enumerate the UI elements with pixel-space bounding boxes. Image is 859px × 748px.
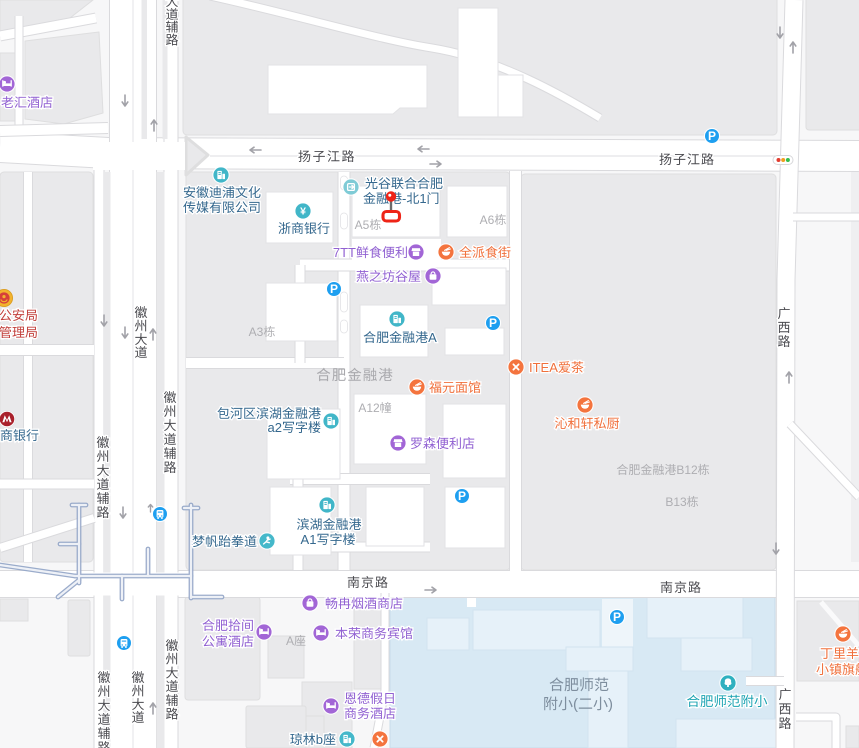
- svg-text:公寓酒店: 公寓酒店: [202, 634, 254, 649]
- svg-text:道: 道: [96, 477, 109, 492]
- svg-text:P: P: [458, 489, 466, 503]
- svg-text:徽: 徽: [96, 435, 109, 450]
- svg-text:徽: 徽: [163, 390, 176, 405]
- svg-text:¥: ¥: [300, 206, 306, 218]
- svg-text:路: 路: [777, 334, 790, 349]
- svg-text:辅: 辅: [163, 446, 176, 461]
- svg-text:A12幢: A12幢: [358, 401, 391, 415]
- svg-text:恩德假日: 恩德假日: [344, 691, 396, 706]
- svg-text:A座: A座: [286, 634, 306, 648]
- svg-text:P: P: [613, 610, 621, 624]
- svg-text:沁和轩私厨: 沁和轩私厨: [554, 416, 619, 431]
- svg-text:西: 西: [778, 702, 791, 717]
- svg-text:P: P: [330, 282, 338, 296]
- svg-text:滨湖金融港: 滨湖金融港: [296, 517, 361, 532]
- svg-text:大: 大: [163, 418, 176, 433]
- svg-text:A1写字楼: A1写字楼: [301, 532, 356, 547]
- svg-text:大: 大: [96, 463, 109, 478]
- svg-text:西: 西: [777, 320, 790, 335]
- svg-text:本荣商务宾馆: 本荣商务宾馆: [335, 626, 413, 641]
- svg-text:州: 州: [96, 449, 109, 464]
- svg-text:道: 道: [131, 710, 144, 725]
- svg-text:传媒有限公司: 传媒有限公司: [183, 200, 261, 215]
- svg-text:市公安局: 市公安局: [0, 308, 38, 323]
- svg-text:辆管理局: 辆管理局: [0, 325, 38, 340]
- svg-text:合肥师范: 合肥师范: [549, 677, 609, 694]
- svg-text:路: 路: [163, 460, 176, 475]
- svg-text:a2写字楼: a2写字楼: [268, 420, 321, 435]
- svg-text:老汇酒店: 老汇酒店: [1, 95, 53, 110]
- svg-text:畅冉烟酒商店: 畅冉烟酒商店: [325, 596, 403, 611]
- svg-text:福元面馆: 福元面馆: [429, 380, 481, 395]
- svg-text:燕之坊谷屋: 燕之坊谷屋: [356, 269, 421, 284]
- svg-text:州: 州: [97, 684, 110, 699]
- svg-text:浙商银行: 浙商银行: [278, 221, 330, 236]
- svg-text:南京路: 南京路: [660, 580, 702, 595]
- svg-text:道: 道: [97, 712, 110, 727]
- svg-text:大: 大: [97, 698, 110, 713]
- svg-text:路: 路: [778, 716, 791, 731]
- svg-text:金融港-北1门: 金融港-北1门: [363, 191, 440, 206]
- svg-text:合肥金融港B12栋: 合肥金融港B12栋: [616, 463, 709, 477]
- svg-text:扬子江路: 扬子江路: [298, 149, 356, 164]
- svg-text:7TT鲜食便利: 7TT鲜食便利: [333, 245, 408, 260]
- svg-text:光谷联合合肥: 光谷联合合肥: [365, 176, 443, 191]
- svg-text:路: 路: [96, 505, 109, 520]
- svg-text:道: 道: [134, 345, 147, 360]
- svg-text:包河区滨湖金融港: 包河区滨湖金融港: [217, 406, 321, 421]
- svg-text:丁里羊: 丁里羊: [820, 646, 859, 661]
- svg-text:扬子江路: 扬子江路: [659, 152, 715, 167]
- svg-text:南京路: 南京路: [347, 575, 389, 590]
- svg-text:A3栋: A3栋: [249, 325, 276, 339]
- svg-text:路: 路: [165, 707, 178, 722]
- svg-text:B13栋: B13栋: [665, 495, 698, 509]
- svg-text:辅: 辅: [96, 491, 109, 506]
- svg-text:A5栋: A5栋: [355, 218, 382, 232]
- svg-text:路: 路: [97, 740, 110, 748]
- svg-text:P: P: [708, 129, 716, 143]
- svg-text:路: 路: [165, 32, 178, 47]
- svg-text:广: 广: [778, 687, 791, 702]
- svg-text:合肥拾间: 合肥拾间: [202, 618, 254, 633]
- svg-text:徽: 徽: [97, 670, 110, 685]
- svg-text:合肥金融港: 合肥金融港: [316, 367, 394, 384]
- svg-text:合肥师范附小: 合肥师范附小: [687, 694, 768, 709]
- svg-text:商务酒店: 商务酒店: [344, 706, 396, 721]
- svg-text:州: 州: [163, 404, 176, 419]
- svg-text:A6栋: A6栋: [480, 213, 507, 227]
- svg-text:ITEA爱茶: ITEA爱茶: [529, 360, 584, 375]
- svg-text:P: P: [489, 316, 497, 330]
- svg-text:梦帆跆拳道: 梦帆跆拳道: [192, 534, 257, 549]
- svg-text:合肥金融港A: 合肥金融港A: [363, 330, 437, 345]
- svg-text:招商银行: 招商银行: [0, 428, 39, 443]
- svg-text:道: 道: [163, 432, 176, 447]
- svg-text:罗森便利店: 罗森便利店: [410, 436, 475, 451]
- svg-text:附小(二小): 附小(二小): [543, 696, 613, 713]
- svg-text:广: 广: [777, 306, 790, 321]
- svg-text:辅: 辅: [97, 726, 110, 741]
- svg-text:全派食街: 全派食街: [459, 245, 511, 260]
- svg-text:安徽迪浦文化: 安徽迪浦文化: [183, 185, 261, 200]
- svg-text:小镇旗舰: 小镇旗舰: [816, 662, 859, 677]
- svg-text:琼林b座: 琼林b座: [290, 732, 336, 747]
